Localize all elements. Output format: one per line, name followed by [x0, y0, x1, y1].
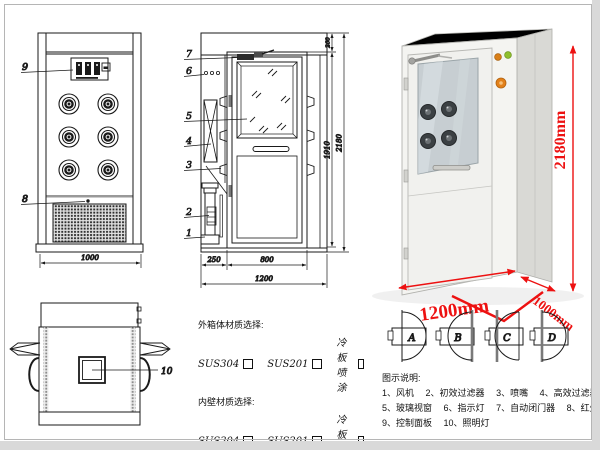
side-brackets — [10, 343, 170, 355]
door-option-d-label: D — [547, 333, 556, 344]
left-depth-dim-label: 250 — [206, 256, 221, 264]
option-sus201: SUS201 — [267, 359, 308, 370]
top-dim-label: 260 — [326, 37, 332, 49]
callout-8: 8 — [22, 194, 28, 205]
callout-5: 5 — [186, 111, 192, 122]
hinge — [404, 78, 408, 90]
checkbox — [243, 359, 253, 369]
legend-item: 6、指示灯 — [444, 403, 485, 413]
legend-item: 2、初效过滤器 — [426, 388, 485, 398]
door-handle — [253, 147, 289, 152]
door-height-dim-label: 1910 — [324, 141, 332, 159]
door-section — [227, 50, 307, 248]
legend-item: 4、高效过滤器 — [540, 388, 599, 398]
callout-2: 2 — [185, 207, 192, 218]
material-selection-block: 外箱体材质选择: SUS304 SUS201 冷板喷涂 内壁材质选择: SUS3… — [198, 317, 378, 450]
indicator-lights — [204, 71, 207, 74]
callout-10: 10 — [161, 367, 173, 377]
front-nozzles — [59, 94, 118, 180]
legend-item: 9、控制面板 — [382, 418, 432, 428]
callout-1: 1 — [186, 228, 192, 239]
callout-4: 4 — [185, 136, 192, 147]
total-height-dim-label: 2180 — [336, 134, 344, 153]
page-edge-bottom — [0, 441, 600, 450]
legend-item: 1、风机 — [382, 388, 414, 398]
inner-material-title: 内壁材质选择: — [198, 397, 378, 407]
side-view-drawing: 260 1910 2180 250 800 1200 7 6 — [184, 33, 349, 288]
cabinet-side-face — [517, 29, 552, 282]
outer-material-title: 外箱体材质选择: — [198, 320, 378, 330]
hinge — [404, 248, 408, 259]
checkbox — [358, 359, 364, 369]
front-base — [36, 244, 143, 252]
hinge — [404, 170, 408, 182]
top-view-drawing: 10 — [10, 303, 173, 425]
front-top-trim — [47, 51, 133, 55]
legend-title: 图示说明: — [382, 373, 596, 383]
option-sus304: SUS304 — [198, 359, 239, 370]
glass-marks — [250, 69, 290, 133]
product-photo: 2180mm 1200mm 1000mm — [372, 29, 584, 334]
fan-base — [201, 235, 219, 244]
legend-item: 7、自动闭门器 — [496, 403, 555, 413]
legend-row-1: 1、风机 2、初效过滤器 3、喷嘴 4、高效过滤器 — [382, 388, 596, 398]
photo-height-label: 2180mm — [552, 110, 569, 169]
door-option-c-label: C — [503, 333, 511, 344]
right-handle — [140, 358, 150, 391]
front-width-dim-label: 1000 — [81, 254, 99, 262]
left-handle — [29, 358, 39, 391]
legend-item: 10、照明灯 — [444, 418, 490, 428]
callout-3: 3 — [186, 160, 192, 171]
air-shower-spec-sheet: 1000 9 8 — [0, 0, 600, 450]
legend-item: 3、喷嘴 — [496, 388, 528, 398]
door-option-c: C — [485, 310, 523, 362]
callout-7: 7 — [186, 49, 193, 60]
photo-door-handle — [433, 166, 470, 171]
legend-row-3: 9、控制面板 10、照明灯 — [382, 418, 596, 428]
option-coated-steel: 冷板喷涂 — [336, 334, 354, 394]
primary-filter-duct — [205, 193, 215, 235]
legend-row-2: 5、玻璃视窗 6、指示灯 7、自动闭门器 8、红外线感应器 — [382, 403, 596, 413]
orange-button — [495, 54, 502, 61]
page-edge-right — [592, 0, 600, 450]
outer-material-options: SUS304 SUS201 冷板喷涂 — [198, 334, 378, 394]
total-width-dim-label: 1200 — [255, 275, 273, 283]
callout-9: 9 — [22, 62, 28, 73]
door-option-b-label: B — [453, 333, 461, 344]
infrared-sensor-dot — [86, 199, 89, 202]
control-panel — [71, 58, 110, 80]
green-button — [505, 52, 512, 59]
door-option-a-label: A — [407, 333, 415, 344]
checkbox — [312, 359, 322, 369]
legend-block: 图示说明: 1、风机 2、初效过滤器 3、喷嘴 4、高效过滤器 5、玻璃视窗 6… — [382, 373, 596, 433]
legend-item: 5、玻璃视窗 — [382, 403, 432, 413]
callout-6: 6 — [186, 66, 192, 77]
return-air-grille — [53, 204, 126, 242]
front-view-drawing: 1000 9 8 — [21, 33, 143, 268]
door-width-dim-label: 800 — [260, 256, 274, 264]
